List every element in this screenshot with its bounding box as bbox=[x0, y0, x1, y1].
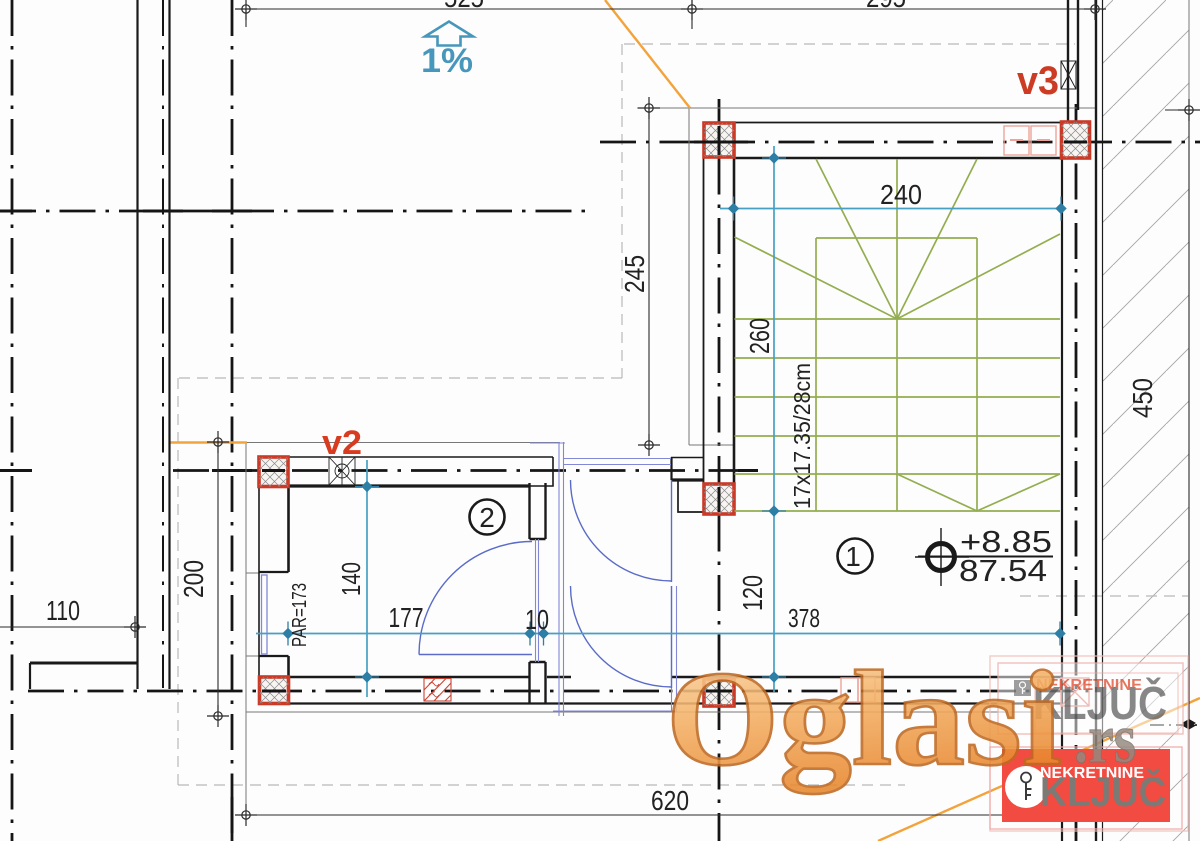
svg-text:240: 240 bbox=[880, 179, 922, 210]
svg-text:140: 140 bbox=[336, 562, 366, 596]
svg-text:PAR=173: PAR=173 bbox=[289, 583, 311, 647]
svg-text:.rs: .rs bbox=[1074, 701, 1136, 778]
svg-text:260: 260 bbox=[744, 318, 775, 354]
svg-text:1%: 1% bbox=[421, 42, 473, 80]
svg-text:17x17.35/28cm: 17x17.35/28cm bbox=[789, 363, 815, 509]
svg-text:Oglasi: Oglasi bbox=[666, 644, 1062, 794]
svg-text:245: 245 bbox=[619, 255, 650, 293]
svg-text:200: 200 bbox=[178, 560, 209, 598]
svg-text:v3: v3 bbox=[1017, 59, 1059, 103]
svg-text:378: 378 bbox=[788, 603, 820, 633]
svg-text:10: 10 bbox=[525, 604, 549, 635]
svg-text:177: 177 bbox=[389, 602, 424, 633]
svg-text:1: 1 bbox=[845, 541, 861, 572]
svg-text:v2: v2 bbox=[322, 424, 362, 462]
svg-text:2: 2 bbox=[479, 502, 495, 533]
svg-text:295: 295 bbox=[866, 0, 906, 13]
svg-text:87.54: 87.54 bbox=[959, 553, 1047, 588]
svg-text:525: 525 bbox=[444, 0, 484, 13]
svg-text:110: 110 bbox=[46, 595, 80, 626]
svg-text:120: 120 bbox=[737, 575, 768, 611]
svg-text:450: 450 bbox=[1127, 378, 1158, 418]
